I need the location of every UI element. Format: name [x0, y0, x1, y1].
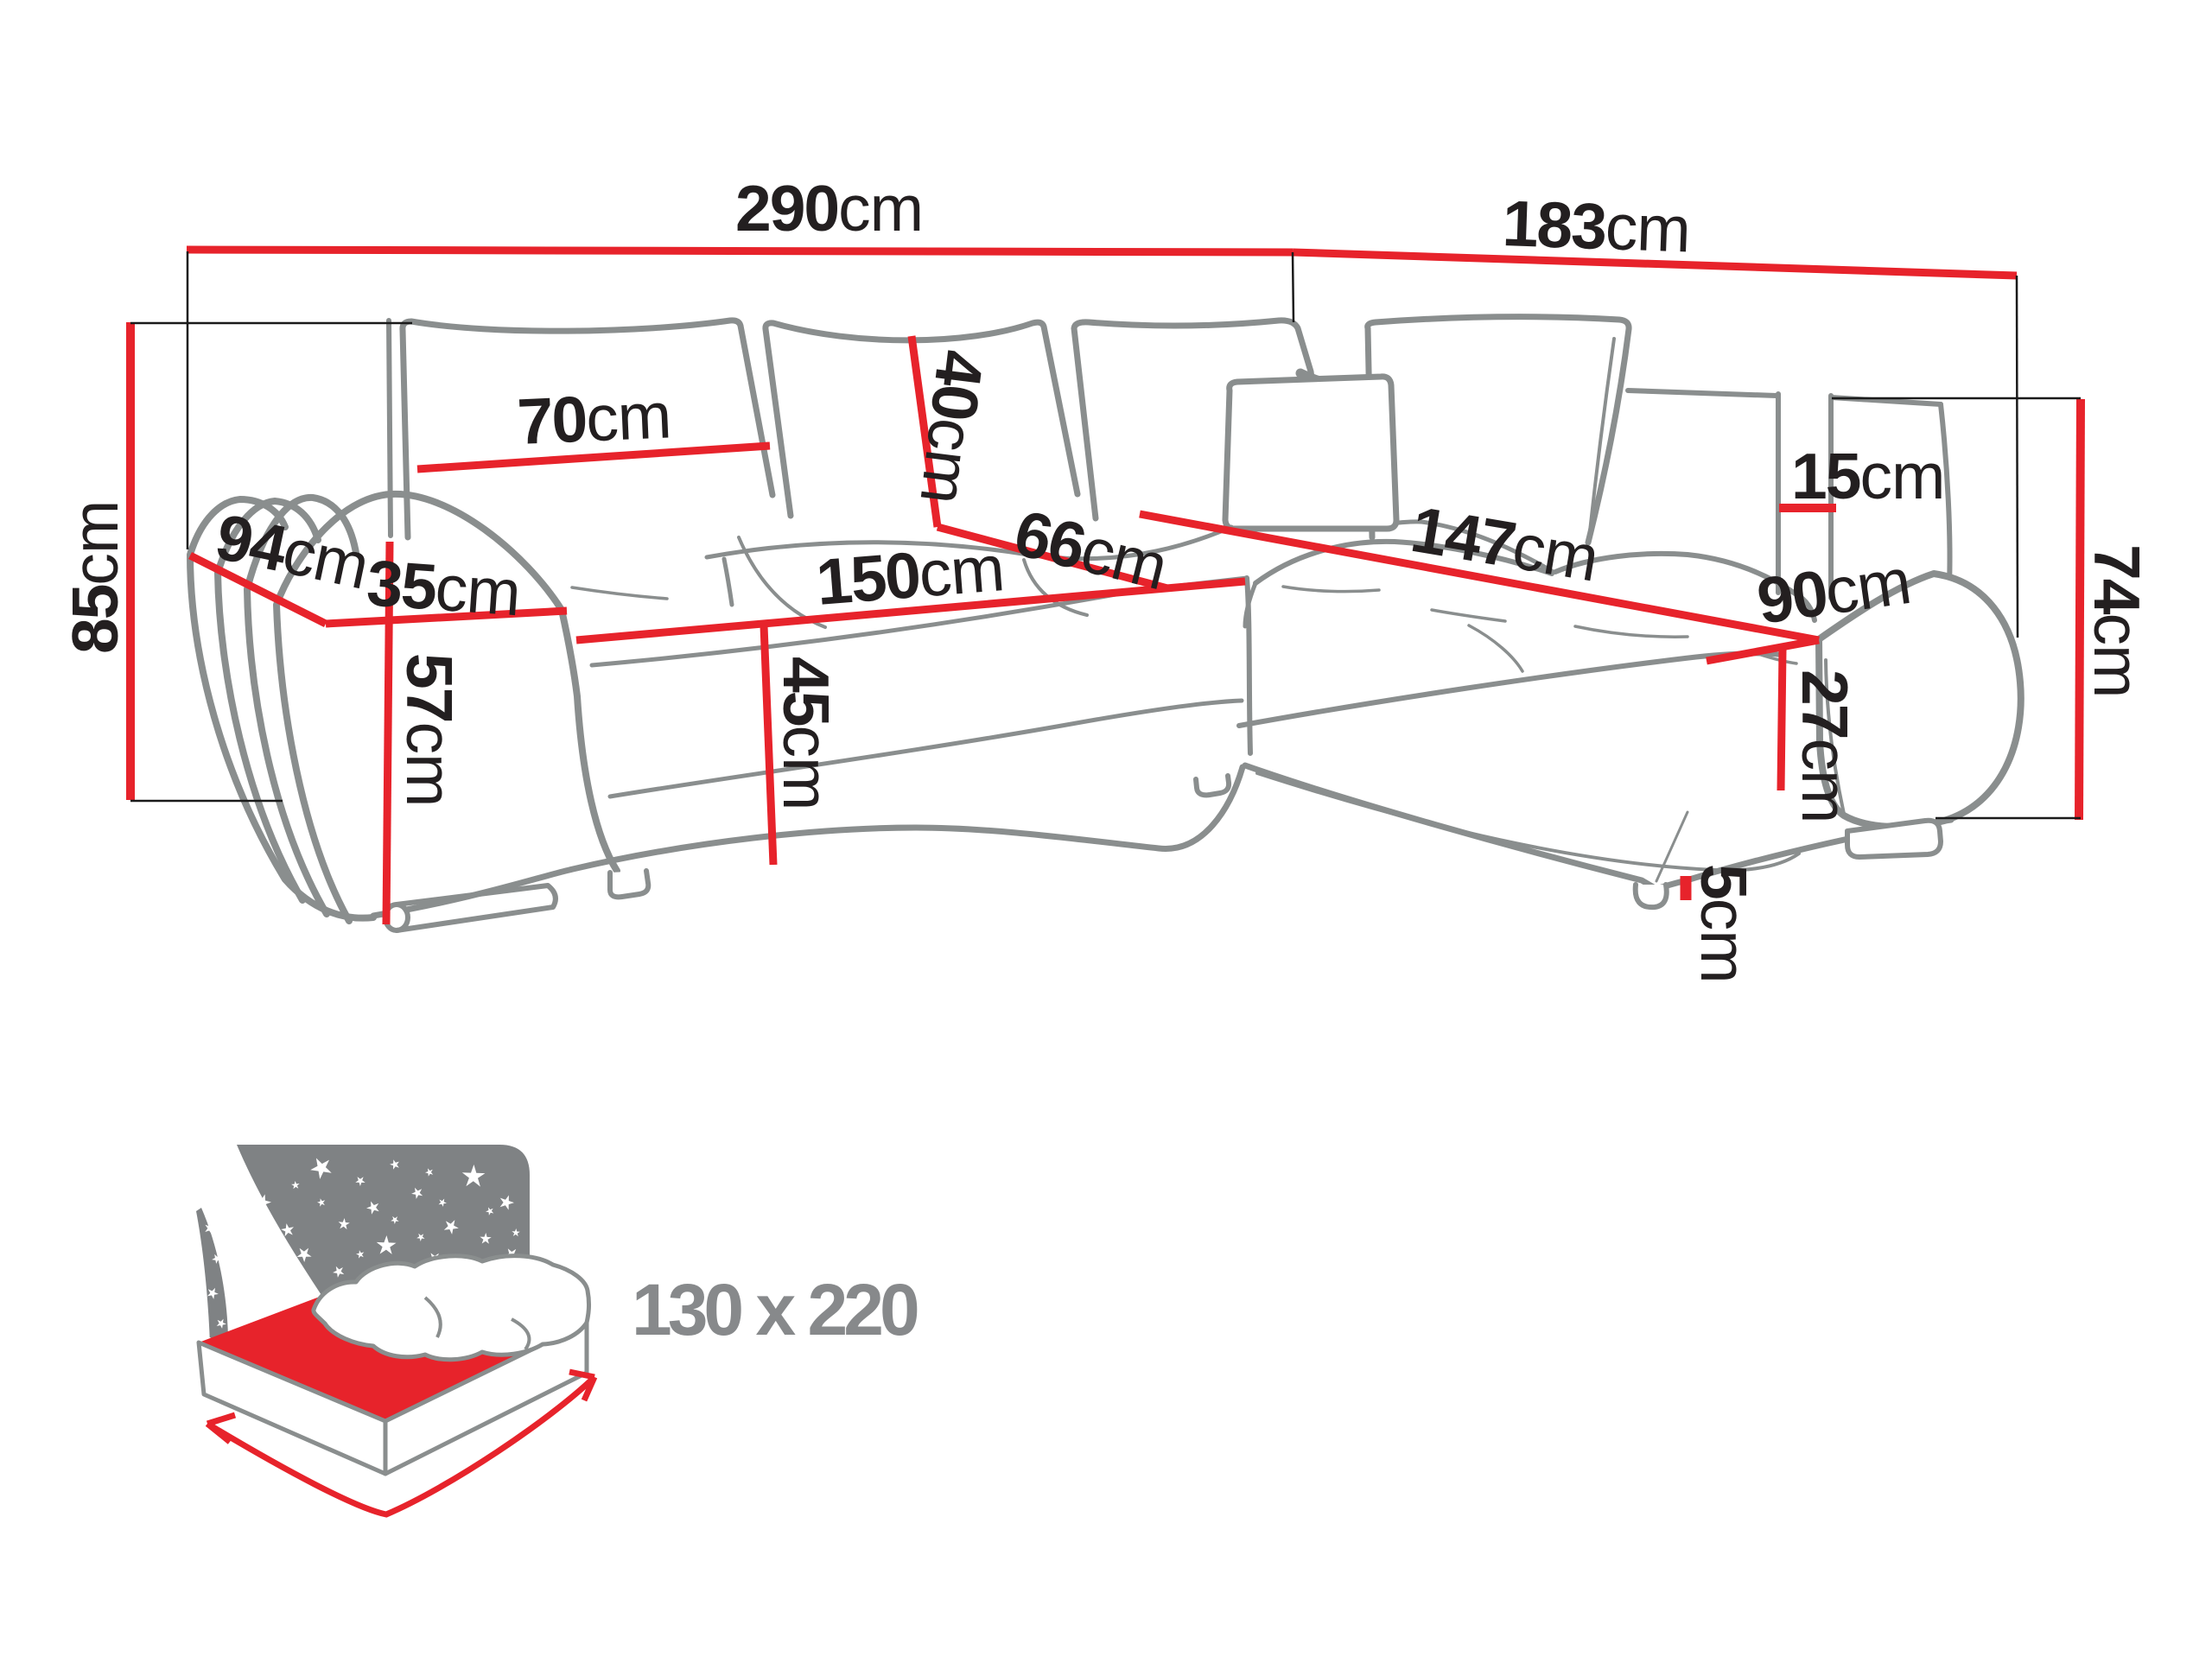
svg-text:130 x 220: 130 x 220: [632, 1269, 918, 1350]
svg-text:45cm: 45cm: [770, 657, 842, 809]
svg-text:70cm: 70cm: [516, 378, 672, 458]
svg-text:15cm: 15cm: [1791, 440, 1944, 512]
svg-text:27cm: 27cm: [1789, 670, 1861, 822]
svg-text:183cm: 183cm: [1501, 187, 1691, 266]
svg-text:5cm: 5cm: [1688, 864, 1760, 983]
svg-text:85cm: 85cm: [59, 501, 131, 654]
svg-text:290cm: 290cm: [735, 172, 923, 244]
svg-text:35cm: 35cm: [365, 546, 523, 629]
svg-text:150cm: 150cm: [814, 531, 1007, 619]
svg-text:57cm: 57cm: [393, 653, 466, 806]
svg-text:74cm: 74cm: [2081, 544, 2153, 697]
